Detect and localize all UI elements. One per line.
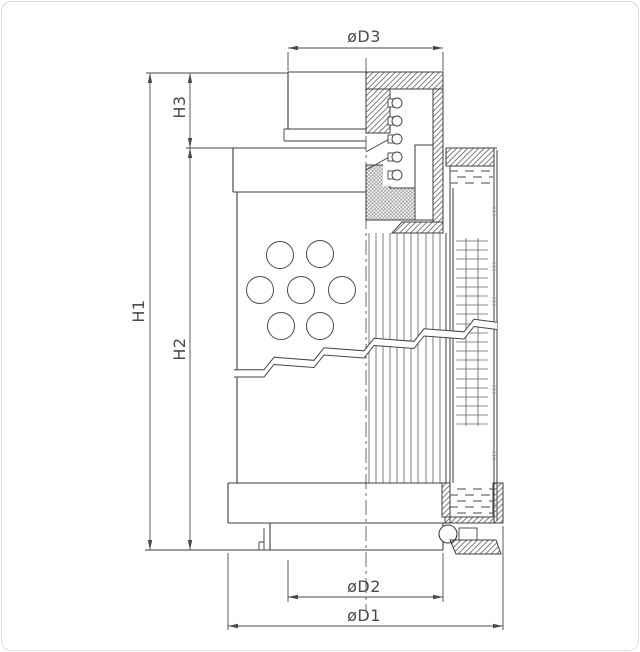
dim-label-d2: øD2 <box>347 577 381 596</box>
potting-band-top <box>450 168 493 188</box>
potting-band-bottom <box>450 488 493 516</box>
dim-label-d3: øD3 <box>347 27 381 46</box>
shell-top-rim-section <box>446 148 494 166</box>
top-end-cap-section <box>366 72 443 233</box>
dimension-h1 <box>145 73 288 550</box>
pleat-lines <box>369 233 440 483</box>
dim-label-h2: H2 <box>170 337 189 360</box>
shell-right-edge <box>494 148 497 523</box>
collar-plate <box>233 148 366 192</box>
dim-label-h1: H1 <box>129 299 148 322</box>
skirt-tab-detail <box>259 528 264 550</box>
media-boundary-lines <box>446 166 453 523</box>
cap-inner-column-section <box>366 89 390 133</box>
bottom-cap-outline <box>228 483 445 523</box>
dim-label-h3: H3 <box>170 95 189 118</box>
perforation-holes <box>247 241 356 340</box>
cap-lip-ring <box>284 129 366 141</box>
dim-label-d1: øD1 <box>347 606 381 625</box>
cap-top-plate-section <box>366 72 443 89</box>
dimension-d3 <box>288 46 443 71</box>
filter-element-section-drawing: øD3 H1 H3 H2 øD2 øD1 <box>0 0 640 652</box>
cap-lower-flange-section <box>392 222 443 233</box>
cap-outer-wall-section <box>433 89 443 222</box>
technical-drawing-page: øD3 H1 H3 H2 øD2 øD1 <box>0 0 640 652</box>
o-ring-groove <box>459 528 477 540</box>
dimension-h3 <box>186 73 233 148</box>
bottom-end-cap <box>145 483 503 554</box>
valve-poppet <box>415 145 433 220</box>
groove-retainer-section <box>450 540 501 554</box>
bottom-cap-wall-section <box>442 483 450 517</box>
